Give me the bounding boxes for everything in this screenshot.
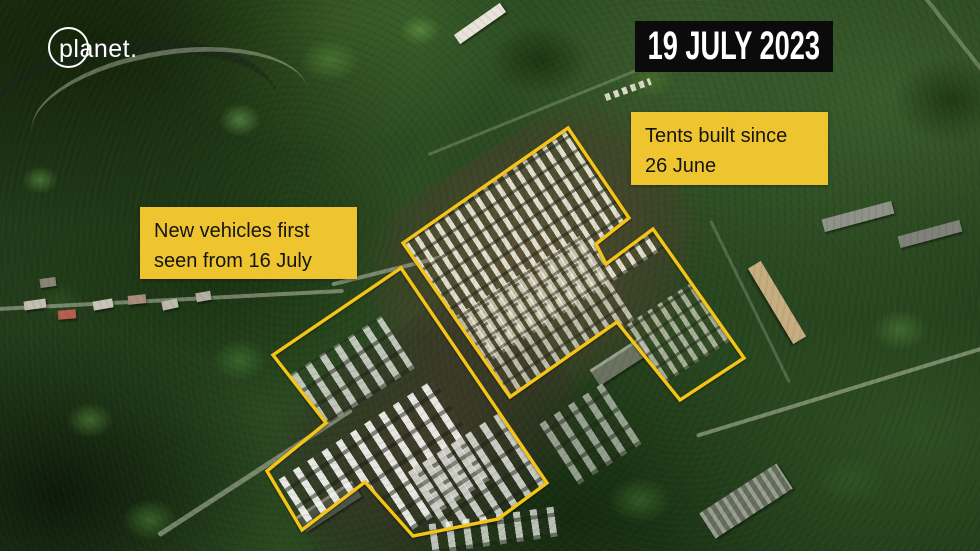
vehicles-callout-line1: New vehicles first bbox=[154, 216, 357, 246]
vehicles-callout-line2: seen from 16 July bbox=[154, 246, 357, 276]
planet-logo-text: planet. bbox=[59, 35, 138, 64]
vehicles-region-outline bbox=[267, 268, 547, 536]
date-text: 19 JULY 2023 bbox=[648, 24, 820, 69]
tents-callout-line2: 26 June bbox=[645, 151, 828, 181]
planet-logo: planet. bbox=[44, 24, 164, 68]
tents-callout-label: Tents built since 26 June bbox=[631, 112, 828, 185]
tents-callout-line1: Tents built since bbox=[645, 121, 828, 151]
vehicles-callout-label: New vehicles first seen from 16 July bbox=[140, 207, 357, 279]
date-badge: 19 JULY 2023 bbox=[635, 21, 833, 72]
satellite-annotation-graphic: Tents built since 26 June New vehicles f… bbox=[0, 0, 980, 551]
